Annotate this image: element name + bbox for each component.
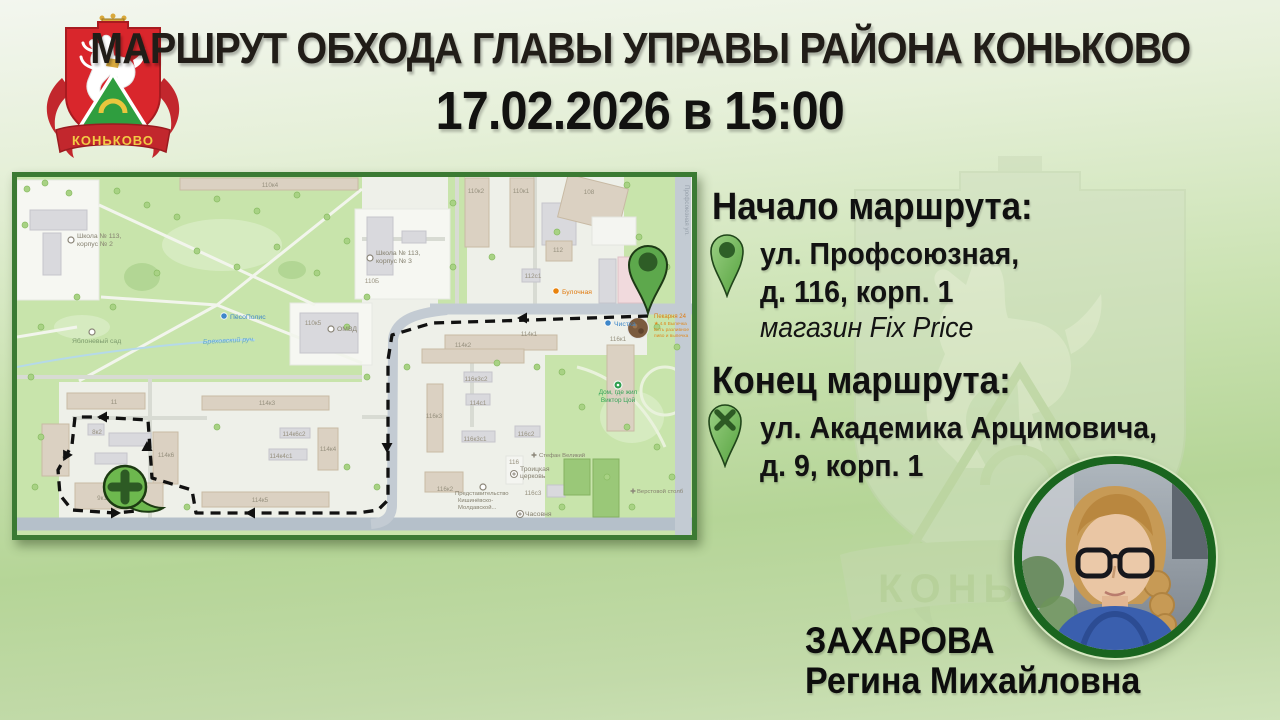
map-label: Кишинёвско- [458, 498, 493, 504]
map-label: Часовня [525, 511, 552, 518]
map-label: церковь [520, 473, 546, 480]
map-label: 110Б [365, 278, 379, 285]
page-title: МАРШРУТ ОБХОДА ГЛАВЫ УПРАВЫ РАЙОНА КОНЬК… [0, 24, 1280, 74]
map-label: 108 [584, 189, 595, 196]
map-label: ПёсоПолис [230, 314, 266, 321]
tree [154, 270, 160, 276]
map-label: 116к1 [610, 336, 627, 343]
map-label: 114с1 [470, 400, 487, 407]
map-label: 116с2 [518, 431, 535, 438]
map-label: корпус № 3 [376, 258, 412, 265]
poi-green-icon [617, 384, 620, 387]
map-label: 116к2 [437, 486, 454, 493]
map-label: 114к4с1 [270, 453, 293, 460]
map-label: 110к5 [305, 320, 322, 327]
map-label: Представительство [455, 491, 509, 497]
start-address-line2: д. 116, корп. 1 [760, 274, 970, 310]
tree [38, 434, 44, 440]
official-photo [1014, 456, 1216, 658]
start-address-note-text: магазин Fix Price [760, 312, 973, 345]
end-heading-text: Конец маршрута: [712, 360, 1011, 403]
tree [28, 374, 34, 380]
map-label: корпус № 2 [77, 241, 113, 248]
tree [234, 264, 240, 270]
tree [184, 504, 190, 510]
map-label: ОМВД [337, 326, 357, 333]
map-label: 116с3 [525, 490, 542, 497]
map-label: Троицкая [520, 466, 550, 473]
map-label: Булочная [562, 289, 592, 296]
building [402, 231, 426, 243]
tree [559, 504, 565, 510]
tree [624, 424, 630, 430]
tree [314, 270, 320, 276]
start-address-note: магазин Fix Price [760, 312, 992, 345]
poi-ring-icon [480, 484, 486, 490]
building [300, 313, 358, 353]
tree [110, 304, 116, 310]
map-label: Профсоюзная ул. [683, 185, 690, 236]
park-dark-patch [124, 263, 160, 291]
route-map: 110к4110к2110к1108110Б112112с1110к5114к1… [12, 172, 697, 540]
poi-ring-icon [89, 329, 95, 335]
tree [636, 234, 642, 240]
poi-dot-icon [605, 320, 611, 326]
map-label: пиво и выпечка [654, 334, 689, 339]
end-address-line1: ул. Академика Арцимовича, [760, 410, 1192, 446]
building [422, 349, 524, 363]
tree [214, 424, 220, 430]
end-address-line2: д. 9, корп. 1 [760, 448, 938, 484]
map-label: 110к4 [262, 182, 279, 189]
tree [404, 364, 410, 370]
end-heading: Конец маршрута: [712, 360, 1037, 403]
tree [559, 369, 565, 375]
map-label: Есть разливное [654, 327, 689, 333]
map-label: 114к6с2 [283, 431, 306, 438]
page-title-text: МАРШРУТ ОБХОДА ГЛАВЫ УПРАВЫ РАЙОНА КОНЬК… [90, 24, 1190, 74]
end-address-line2-text: д. 9, корп. 1 [760, 448, 923, 484]
tree [534, 364, 540, 370]
bakery-photo-icon [638, 328, 644, 334]
tree [74, 294, 80, 300]
map-label: 116к3с2 [465, 376, 488, 383]
poi-dot-icon [221, 313, 227, 319]
tree [674, 344, 680, 350]
tree [174, 214, 180, 220]
tree [629, 504, 635, 510]
tree [32, 484, 38, 490]
tree [214, 196, 220, 202]
map-label: Школа № 113, [376, 250, 421, 257]
tree [274, 244, 280, 250]
portrait-image [1022, 464, 1208, 650]
building [43, 233, 61, 275]
map-label: 110к1 [513, 188, 530, 195]
start-heading: Начало маршрута: [712, 186, 1061, 229]
start-heading-text: Начало маршрута: [712, 186, 1033, 229]
tree [42, 180, 48, 186]
map-label: Дом, где жил [599, 389, 638, 396]
tree [374, 484, 380, 490]
end-pin-icon [706, 400, 744, 468]
poster: КОНЬКОВО КОНЬКОВО МАРШРУТ ОБХОДА ГЛАВЫ У [0, 0, 1280, 720]
building [95, 453, 127, 464]
tree [364, 294, 370, 300]
map-start-pin-icon [639, 253, 658, 272]
tree [344, 238, 350, 244]
map-label: 8к2 [92, 429, 102, 436]
official-name-text: Регина Михайловна [805, 660, 1140, 702]
building [547, 485, 565, 497]
map-label: 114к3 [259, 400, 276, 407]
poi-ring-icon [68, 237, 74, 243]
map-label: Верстовой столб [637, 488, 684, 495]
tree [579, 404, 585, 410]
start-pin-icon [708, 230, 746, 298]
tree [489, 254, 495, 260]
map-label: 114к5 [252, 497, 269, 504]
map-label: 112с1 [525, 273, 542, 280]
tree [364, 374, 370, 380]
start-address-line2-text: д. 116, корп. 1 [760, 274, 953, 310]
building [367, 217, 393, 275]
start-address-line1: ул. Профсоюзная, [760, 236, 1042, 272]
tree [624, 182, 630, 188]
tree [22, 222, 28, 228]
building [599, 259, 616, 303]
map-label: 116к3 [426, 413, 443, 420]
poi-dot-icon [553, 288, 559, 294]
map-label: 11 [111, 399, 118, 406]
building [42, 424, 69, 476]
map-label: Молдавской... [458, 504, 497, 511]
building [564, 459, 590, 495]
official-surname-text: ЗАХАРОВА [805, 620, 994, 662]
building [30, 210, 87, 230]
map-label: Стефан Великий [539, 452, 585, 459]
event-datetime: 17.02.2026 в 15:00 [0, 80, 1280, 142]
tree [144, 202, 150, 208]
tree [344, 464, 350, 470]
map-label: 112 [553, 247, 564, 254]
map-label: 114к2 [455, 342, 472, 349]
building [593, 459, 619, 517]
tree [294, 192, 300, 198]
tree [114, 188, 120, 194]
tree [450, 200, 456, 206]
tree [66, 190, 72, 196]
building [109, 433, 151, 446]
map-label: Чистка [614, 321, 636, 328]
tree [654, 444, 660, 450]
official-name: Регина Михайловна [805, 660, 1169, 702]
tree [554, 229, 560, 235]
route-map-image: 110к4110к2110к1108110Б112112с1110к5114к1… [17, 177, 692, 535]
building [67, 393, 145, 409]
map-label: ★ 4.6 Выпечка [654, 321, 687, 327]
park-light-patch [54, 315, 110, 339]
map-label: 114к6 [158, 452, 175, 459]
park-dark-patch [278, 261, 306, 279]
tree [324, 214, 330, 220]
map-label: Виктор Цой [601, 396, 636, 404]
map-label: 114к1 [521, 331, 538, 338]
start-address-line1-text: ул. Профсоюзная, [760, 236, 1019, 272]
tree [38, 324, 44, 330]
poi-ring-icon [367, 255, 373, 261]
park-area [660, 177, 675, 535]
poi-ring-icon [328, 326, 334, 332]
end-address-line1-text: ул. Академика Арцимовича, [760, 410, 1157, 446]
tree [604, 474, 610, 480]
official-surname: ЗАХАРОВА [805, 620, 1011, 662]
map-label: 110к2 [468, 188, 485, 195]
tree [494, 360, 500, 366]
tree [450, 264, 456, 270]
map-label: 116 [509, 459, 520, 466]
event-datetime-text: 17.02.2026 в 15:00 [436, 80, 844, 142]
tree [669, 474, 675, 480]
map-label: Яблоневый сад [72, 337, 121, 345]
tree [194, 248, 200, 254]
tree [254, 208, 260, 214]
map-label: Пекарня 24 [654, 314, 687, 320]
tree [24, 186, 30, 192]
building [592, 217, 636, 245]
map-label: 114к4 [320, 446, 337, 453]
map-label: Школа № 113, [77, 233, 122, 240]
map-label: 116к3с1 [464, 436, 487, 443]
